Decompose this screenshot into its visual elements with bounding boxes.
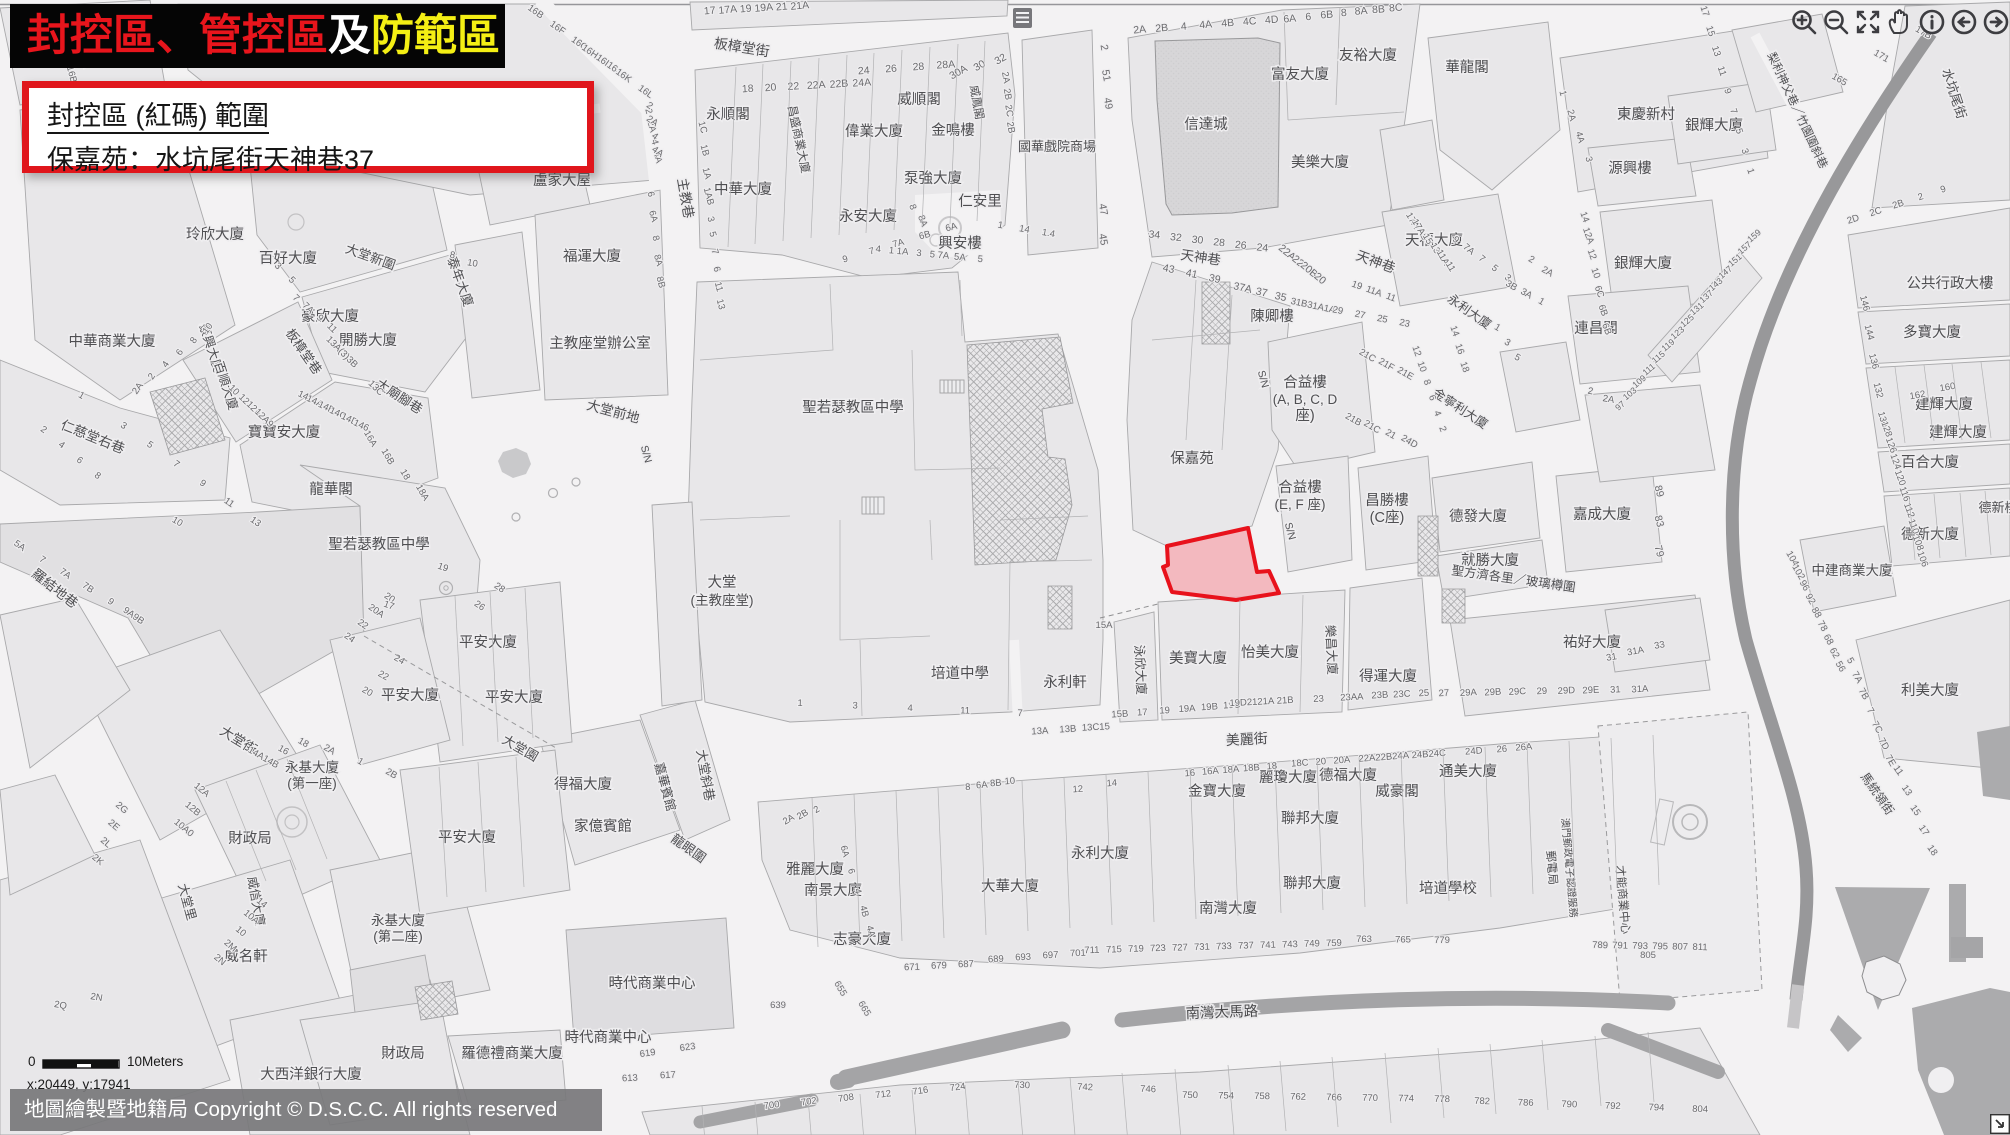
svg-text:28: 28 <box>1213 236 1226 249</box>
svg-text:727: 727 <box>1172 942 1188 954</box>
svg-text:大西洋銀行大廈: 大西洋銀行大廈 <box>260 1065 362 1083</box>
svg-text:613: 613 <box>622 1073 638 1085</box>
svg-text:信達城: 信達城 <box>1184 116 1228 133</box>
svg-text:金寶大廈: 金寶大廈 <box>1188 782 1246 800</box>
svg-text:28: 28 <box>912 61 925 74</box>
svg-text:790: 790 <box>1561 1099 1577 1111</box>
svg-text:711: 711 <box>1084 945 1100 957</box>
svg-text:羅德禮商業大廈: 羅德禮商業大廈 <box>461 1044 563 1062</box>
svg-text:座): 座) <box>1295 407 1314 424</box>
svg-text:金鳴樓: 金鳴樓 <box>931 122 975 139</box>
svg-text:泵強大廈: 泵強大廈 <box>904 169 962 187</box>
svg-text:百好大廈: 百好大廈 <box>259 249 317 267</box>
svg-text:26A: 26A <box>1515 741 1533 753</box>
svg-text:永順閣: 永順閣 <box>706 106 750 123</box>
svg-text:得福大廈: 得福大廈 <box>554 775 612 793</box>
svg-text:766: 766 <box>1326 1092 1342 1103</box>
svg-text:平安大廈: 平安大廈 <box>485 688 543 706</box>
svg-text:804: 804 <box>1692 1104 1708 1116</box>
svg-text:794: 794 <box>1648 1102 1664 1114</box>
svg-text:762: 762 <box>1290 1092 1306 1103</box>
svg-text:國華戲院商場: 國華戲院商場 <box>1018 139 1096 154</box>
svg-text:742: 742 <box>1077 1082 1093 1094</box>
svg-text:731: 731 <box>1194 942 1210 954</box>
svg-text:31: 31 <box>1610 684 1621 696</box>
svg-text:765: 765 <box>1395 935 1411 946</box>
svg-text:49: 49 <box>1101 97 1115 111</box>
svg-text:21B: 21B <box>1276 695 1293 707</box>
svg-text:25: 25 <box>1418 688 1429 700</box>
svg-text:708: 708 <box>837 1092 854 1105</box>
svg-text:(C座): (C座) <box>1370 509 1405 526</box>
svg-text:5A: 5A <box>954 252 967 264</box>
svg-text:20: 20 <box>764 81 777 94</box>
svg-text:富友大廈: 富友大廈 <box>1271 65 1329 83</box>
svg-text:24A: 24A <box>852 76 871 89</box>
svg-text:24D: 24D <box>1465 745 1483 757</box>
svg-text:中建商業大廈: 中建商業大廈 <box>1812 562 1893 578</box>
svg-text:財政局: 財政局 <box>381 1045 425 1062</box>
svg-text:789: 789 <box>1592 940 1608 952</box>
svg-text:平安大廈: 平安大廈 <box>381 686 439 704</box>
svg-text:利美大廈: 利美大廈 <box>1901 681 1959 699</box>
svg-text:13A: 13A <box>1031 726 1049 738</box>
svg-text:偉業大廈: 偉業大廈 <box>845 122 903 140</box>
svg-text:聯邦大廈: 聯邦大廈 <box>1281 809 1339 827</box>
svg-text:多寶大廈: 多寶大廈 <box>1903 323 1961 341</box>
svg-text:29: 29 <box>1331 304 1344 317</box>
svg-text:財政局: 財政局 <box>228 830 272 847</box>
svg-text:779: 779 <box>1434 935 1450 946</box>
svg-text:(A, B, C, D: (A, B, C, D <box>1273 392 1338 407</box>
svg-text:美寶大廈: 美寶大廈 <box>1169 649 1227 667</box>
svg-text:770: 770 <box>1362 1093 1378 1104</box>
svg-text:2N: 2N <box>89 991 103 1004</box>
svg-text:17A: 17A <box>718 3 738 17</box>
svg-text:746: 746 <box>1140 1084 1156 1096</box>
svg-text:寶寶安大廈: 寶寶安大廈 <box>248 423 321 441</box>
svg-text:26: 26 <box>1496 744 1507 756</box>
svg-text:3: 3 <box>852 700 858 711</box>
svg-text:22A: 22A <box>806 79 825 92</box>
svg-text:6A: 6A <box>976 780 989 792</box>
svg-text:14: 14 <box>1106 778 1117 790</box>
svg-text:主教座堂辦公室: 主教座堂辦公室 <box>549 335 651 352</box>
svg-text:750: 750 <box>1182 1090 1198 1101</box>
svg-text:763: 763 <box>1356 934 1372 945</box>
svg-text:51: 51 <box>1099 69 1113 83</box>
svg-text:45: 45 <box>1096 233 1110 247</box>
svg-text:(主教座堂): (主教座堂) <box>691 593 754 608</box>
svg-text:31A: 31A <box>1631 684 1649 696</box>
svg-text:730: 730 <box>1014 1080 1030 1092</box>
svg-text:24: 24 <box>1256 241 1269 254</box>
svg-text:嘉成大廈: 嘉成大廈 <box>1573 505 1631 523</box>
svg-text:4C: 4C <box>1243 15 1258 28</box>
svg-text:4A: 4A <box>1199 18 1213 31</box>
svg-text:737: 737 <box>1238 940 1254 952</box>
svg-text:培道中學: 培道中學 <box>931 664 989 682</box>
svg-text:4B: 4B <box>1221 17 1235 30</box>
svg-text:29D: 29D <box>1557 685 1575 697</box>
svg-text:19: 19 <box>1159 705 1170 717</box>
svg-text:33: 33 <box>1653 639 1665 652</box>
svg-text:威順閣: 威順閣 <box>897 91 941 108</box>
svg-text:22: 22 <box>787 80 800 93</box>
svg-text:5: 5 <box>977 254 983 265</box>
svg-text:18A: 18A <box>1222 764 1240 776</box>
svg-text:8B: 8B <box>1372 3 1386 16</box>
svg-text:733: 733 <box>1216 941 1232 953</box>
svg-text:玲欣大廈: 玲欣大廈 <box>186 225 244 243</box>
svg-text:6B: 6B <box>1320 9 1334 22</box>
svg-text:47: 47 <box>1096 203 1110 217</box>
svg-text:13B: 13B <box>1059 724 1076 736</box>
svg-text:聖若瑟教區中學: 聖若瑟教區中學 <box>328 535 430 553</box>
svg-text:祐好大廈: 祐好大廈 <box>1563 633 1621 651</box>
svg-text:18: 18 <box>742 83 755 96</box>
svg-text:687: 687 <box>958 959 974 971</box>
svg-text:聯邦大廈: 聯邦大廈 <box>1283 874 1341 892</box>
svg-text:23: 23 <box>1398 317 1411 330</box>
svg-text:5 7A: 5 7A <box>929 249 950 262</box>
svg-text:31: 31 <box>1605 651 1617 664</box>
svg-text:16A: 16A <box>1202 766 1220 778</box>
svg-text:29A: 29A <box>1460 687 1478 699</box>
svg-text:永基大廈: 永基大廈 <box>371 912 425 928</box>
svg-text:時代商業中心: 時代商業中心 <box>609 975 696 992</box>
svg-text:龍華閣: 龍華閣 <box>309 481 353 498</box>
svg-text:792: 792 <box>1605 1101 1621 1113</box>
svg-text:8B: 8B <box>990 778 1002 790</box>
svg-text:4: 4 <box>875 244 881 255</box>
svg-text:陳卿樓: 陳卿樓 <box>1250 308 1294 325</box>
svg-text:德福大廈: 德福大廈 <box>1319 766 1377 784</box>
svg-text:15A: 15A <box>1096 620 1114 631</box>
svg-text:689: 689 <box>988 954 1004 966</box>
svg-text:6A: 6A <box>1283 13 1297 26</box>
svg-text:4: 4 <box>1180 20 1187 32</box>
svg-text:(E, F 座): (E, F 座) <box>1275 497 1326 512</box>
svg-text:754: 754 <box>1218 1090 1234 1101</box>
svg-text:14: 14 <box>1018 223 1030 236</box>
svg-text:福運大廈: 福運大廈 <box>563 247 621 265</box>
svg-text:19A: 19A <box>1178 703 1196 715</box>
svg-text:公共行政大樓: 公共行政大樓 <box>1907 275 1994 292</box>
svg-text:(第二座): (第二座) <box>373 928 423 944</box>
svg-text:724: 724 <box>949 1081 966 1094</box>
svg-text:8C: 8C <box>1389 2 1404 15</box>
svg-text:德發大廈: 德發大廈 <box>1449 507 1507 525</box>
svg-text:美麗街: 美麗街 <box>1225 730 1268 748</box>
svg-text:仁安里: 仁安里 <box>958 193 1002 210</box>
svg-text:2B: 2B <box>1001 88 1014 101</box>
svg-text:29: 29 <box>1536 686 1547 698</box>
svg-text:通美大廈: 通美大廈 <box>1439 762 1497 780</box>
svg-text:32: 32 <box>1169 231 1182 244</box>
svg-text:保嘉苑: 保嘉苑 <box>1170 450 1214 467</box>
svg-text:11: 11 <box>960 705 970 716</box>
svg-text:2C: 2C <box>1002 104 1015 118</box>
svg-text:19A: 19A <box>754 1 774 15</box>
svg-text:大堂: 大堂 <box>708 574 737 591</box>
svg-text:華龍閣: 華龍閣 <box>1445 59 1489 76</box>
svg-text:26: 26 <box>885 63 898 76</box>
svg-text:合益樓: 合益樓 <box>1278 479 1322 496</box>
svg-text:18: 18 <box>1266 761 1277 773</box>
svg-text:19B: 19B <box>1201 701 1218 713</box>
svg-text:805: 805 <box>1640 950 1656 961</box>
svg-text:29E: 29E <box>1582 685 1599 697</box>
svg-text:德新樓: 德新樓 <box>1978 500 2010 515</box>
svg-text:2Q: 2Q <box>53 999 67 1012</box>
svg-text:759: 759 <box>1326 938 1342 950</box>
svg-text:永安大廈: 永安大廈 <box>839 207 897 225</box>
svg-text:昌勝樓: 昌勝樓 <box>1365 492 1409 509</box>
svg-text:百合大廈: 百合大廈 <box>1901 453 1959 471</box>
svg-text:623: 623 <box>679 1041 696 1054</box>
svg-text:志豪大廈: 志豪大廈 <box>833 930 891 948</box>
svg-text:10: 10 <box>1004 776 1015 788</box>
svg-text:2B: 2B <box>1155 22 1169 35</box>
svg-text:平安大廈: 平安大廈 <box>438 828 496 846</box>
svg-text:619: 619 <box>639 1047 656 1060</box>
svg-text:泳欣大廈: 泳欣大廈 <box>1132 644 1150 695</box>
svg-text:19: 19 <box>739 3 752 16</box>
svg-text:2A: 2A <box>1133 23 1147 36</box>
svg-text:永利大廈: 永利大廈 <box>1071 844 1129 862</box>
svg-text:8A: 8A <box>1354 5 1368 18</box>
svg-text:大華大廈: 大華大廈 <box>981 877 1039 895</box>
svg-text:3: 3 <box>916 248 922 259</box>
svg-text:南灣大馬路: 南灣大馬路 <box>1185 1003 1259 1023</box>
svg-text:23C: 23C <box>1393 689 1411 701</box>
svg-text:家億賓館: 家億賓館 <box>574 817 632 835</box>
svg-text:700: 700 <box>763 1099 780 1112</box>
svg-text:友裕大廈: 友裕大廈 <box>1339 46 1397 64</box>
svg-text:807: 807 <box>1672 941 1688 953</box>
svg-text:782: 782 <box>1474 1096 1490 1108</box>
svg-text:758: 758 <box>1254 1091 1270 1102</box>
svg-text:23AA: 23AA <box>1340 691 1364 703</box>
svg-text:開勝大廈: 開勝大廈 <box>339 331 397 349</box>
svg-text:21A: 21A <box>790 0 810 13</box>
svg-text:1.4: 1.4 <box>1041 227 1056 240</box>
svg-text:34: 34 <box>1148 228 1161 241</box>
svg-text:786: 786 <box>1518 1097 1534 1109</box>
svg-text:威豪閣: 威豪閣 <box>1375 783 1419 800</box>
svg-text:693: 693 <box>1015 952 1031 964</box>
svg-text:得運大廈: 得運大廈 <box>1359 667 1417 685</box>
svg-text:8: 8 <box>965 782 971 793</box>
svg-text:4: 4 <box>907 703 913 714</box>
svg-text:24: 24 <box>858 65 871 78</box>
svg-text:中華大廈: 中華大廈 <box>714 180 772 198</box>
svg-text:怡美大廈: 怡美大廈 <box>1241 643 1299 661</box>
svg-text:10: 10 <box>466 257 478 270</box>
svg-text:791: 791 <box>1612 940 1628 952</box>
svg-text:興安樓: 興安樓 <box>938 235 982 252</box>
svg-text:811: 811 <box>1692 942 1708 954</box>
svg-text:18B: 18B <box>1243 762 1261 774</box>
svg-text:17: 17 <box>1137 707 1148 719</box>
svg-text:26: 26 <box>1234 239 1247 252</box>
svg-text:18C: 18C <box>1291 757 1309 769</box>
svg-text:741: 741 <box>1260 940 1276 952</box>
svg-text:716: 716 <box>912 1085 929 1098</box>
svg-text:743: 743 <box>1282 939 1298 951</box>
svg-text:合益樓: 合益樓 <box>1283 374 1327 391</box>
svg-text:7: 7 <box>1017 708 1023 719</box>
svg-text:平安大廈: 平安大廈 <box>459 633 517 651</box>
svg-text:樂昌大廈: 樂昌大廈 <box>1323 624 1341 675</box>
svg-text:12: 12 <box>1072 784 1083 796</box>
svg-text:南灣大廈: 南灣大廈 <box>1199 899 1257 917</box>
svg-text:23B: 23B <box>1371 690 1388 702</box>
svg-text:4D: 4D <box>1265 13 1280 26</box>
svg-text:774: 774 <box>1398 1093 1414 1104</box>
svg-text:27: 27 <box>1438 688 1449 700</box>
svg-text:銀輝大廈: 銀輝大廈 <box>1614 254 1672 272</box>
svg-text:13C15: 13C15 <box>1082 721 1111 733</box>
svg-text:建輝大廈: 建輝大廈 <box>1929 423 1987 441</box>
svg-text:6: 6 <box>1305 11 1312 23</box>
svg-text:617: 617 <box>660 1070 676 1082</box>
svg-text:719: 719 <box>1128 943 1144 955</box>
svg-text:671: 671 <box>904 962 920 974</box>
svg-text:697: 697 <box>1042 950 1058 962</box>
svg-text:東慶新村: 東慶新村 <box>1617 106 1675 123</box>
svg-text:21: 21 <box>775 1 788 14</box>
svg-text:聖若瑟教區中學: 聖若瑟教區中學 <box>802 398 904 416</box>
svg-text:23: 23 <box>1313 693 1324 705</box>
svg-text:679: 679 <box>931 960 947 972</box>
svg-text:715: 715 <box>1106 944 1122 956</box>
svg-text:15B: 15B <box>1111 709 1128 721</box>
svg-text:749: 749 <box>1304 938 1320 950</box>
svg-text:8: 8 <box>1340 7 1347 19</box>
svg-text:時代商業中心: 時代商業中心 <box>565 1029 652 1046</box>
svg-text:712: 712 <box>875 1088 892 1101</box>
svg-text:29C: 29C <box>1508 686 1526 698</box>
svg-text:源興樓: 源興樓 <box>1608 160 1652 177</box>
svg-text:2B: 2B <box>1004 121 1017 134</box>
svg-text:永利軒: 永利軒 <box>1043 674 1087 691</box>
svg-text:20A: 20A <box>1333 754 1351 766</box>
svg-text:永基大廈: 永基大廈 <box>285 759 339 775</box>
svg-text:30: 30 <box>1191 234 1204 247</box>
svg-text:美樂大廈: 美樂大廈 <box>1291 153 1349 171</box>
svg-text:1: 1 <box>797 698 803 709</box>
svg-text:17: 17 <box>703 5 716 18</box>
svg-text:25: 25 <box>1376 313 1389 326</box>
svg-text:27: 27 <box>1354 309 1367 322</box>
svg-text:中華商業大廈: 中華商業大廈 <box>69 332 156 350</box>
svg-text:29B: 29B <box>1484 687 1501 699</box>
svg-text:723: 723 <box>1150 943 1166 955</box>
svg-text:639: 639 <box>770 1000 786 1011</box>
